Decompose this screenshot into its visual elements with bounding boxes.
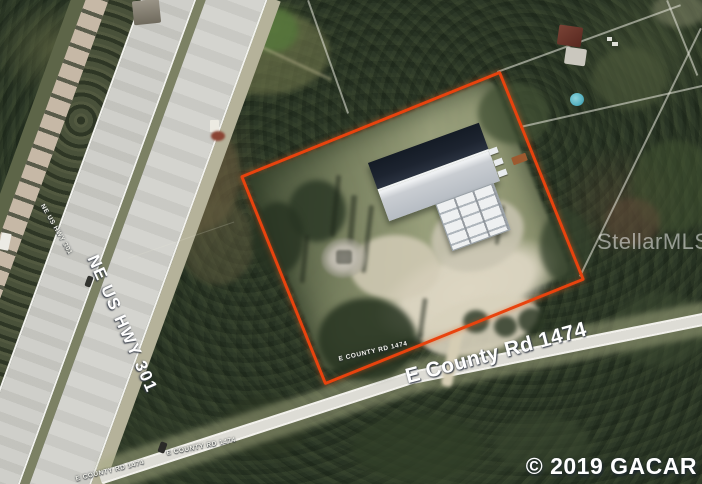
round-pool <box>570 93 584 106</box>
tree-cluster <box>494 316 517 337</box>
rooftop-speck <box>607 37 612 41</box>
neighbor-house-roof <box>557 24 584 47</box>
neighbor-house-roof <box>132 0 161 25</box>
tree-cluster <box>352 415 482 480</box>
rooftop-speck <box>612 42 618 46</box>
neighbor-shed-roof <box>564 47 587 67</box>
terrain-patch <box>211 131 225 141</box>
mls-watermark: StellarMLS <box>597 229 702 255</box>
aerial-photo: NE US HWY 301 E COUNTY RD 1474 E COUNTY … <box>0 0 702 484</box>
copyright-notice: © 2019 GACAR <box>526 453 697 480</box>
